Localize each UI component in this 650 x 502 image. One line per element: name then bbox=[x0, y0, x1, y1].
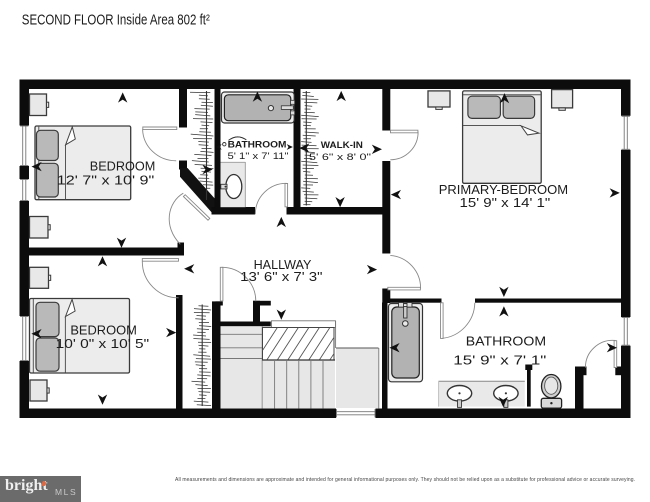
svg-text:15' 9" x 14' 1": 15' 9" x 14' 1" bbox=[460, 195, 551, 210]
svg-text:WALK-IN: WALK-IN bbox=[321, 140, 363, 150]
svg-text:10' 0" x 10' 5": 10' 0" x 10' 5" bbox=[56, 336, 150, 351]
svg-text:BATHROOM: BATHROOM bbox=[228, 140, 287, 150]
svg-text:BEDROOM: BEDROOM bbox=[90, 159, 156, 174]
svg-text:BATHROOM: BATHROOM bbox=[466, 334, 546, 349]
svg-text:13' 6" x 7' 3": 13' 6" x 7' 3" bbox=[240, 269, 323, 284]
svg-text:SECOND FLOOR Inside Area 802 f: SECOND FLOOR Inside Area 802 ft² bbox=[22, 13, 210, 29]
svg-text:5' 6" x 8' 0": 5' 6" x 8' 0" bbox=[309, 152, 371, 162]
svg-text:12' 7" x 10' 9": 12' 7" x 10' 9" bbox=[57, 173, 155, 188]
svg-text:5' 1" x 7' 11": 5' 1" x 7' 11" bbox=[228, 151, 289, 161]
svg-text:15' 9" x 7' 1": 15' 9" x 7' 1" bbox=[453, 353, 546, 368]
